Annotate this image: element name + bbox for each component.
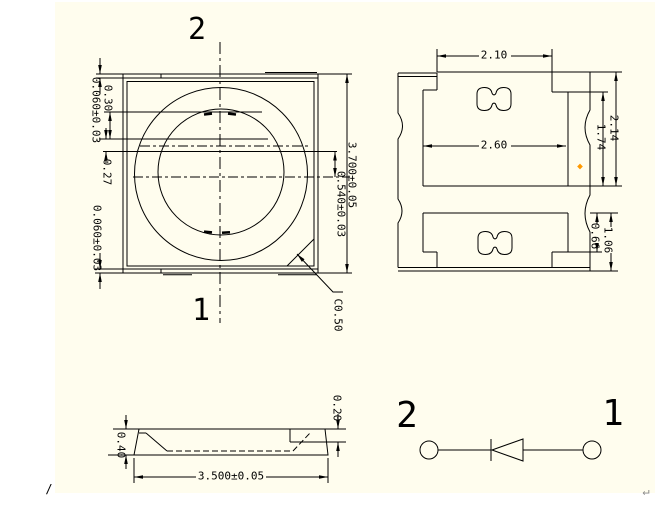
dim-right-height-214: 2.14	[609, 115, 620, 142]
dim-tab-width-210: 2.10	[481, 50, 508, 61]
dim-thickness-040: 0.40	[116, 432, 127, 459]
paragraph-mark: ↵	[642, 485, 649, 497]
dim-lens-offset-0540: 0.540±0.03	[336, 171, 347, 237]
dim-pad-width-260: 2.60	[481, 140, 508, 151]
dim-chamfer-c050: C0.50	[333, 298, 344, 331]
pin2-label-circuit: 2	[396, 398, 418, 434]
dim-anode-height-106: 1.06	[603, 227, 614, 254]
dim-body-height-3700: 3.700±0.05	[347, 142, 358, 208]
pin2-label-top-view: 2	[188, 15, 206, 45]
pin1-label-top-view: 1	[192, 296, 210, 326]
dim-strip-030: 0.30	[103, 85, 114, 112]
dim-anode-step-066: 0.66	[590, 223, 601, 250]
drawing-canvas: 2 1 0.060±0.03 0.30 0.27 0.060±0.03 3.70…	[0, 0, 655, 508]
dim-top-lead-gap: 0.060±0.03	[91, 77, 102, 143]
dim-length-3500: 3.500±0.05	[198, 471, 264, 482]
dim-offset-027: 0.27	[102, 159, 113, 186]
dim-pad-height-174: 1.74	[596, 124, 607, 151]
dim-bottom-lead-gap: 0.060±0.03	[92, 205, 103, 271]
slash-artifact: /	[45, 483, 52, 495]
dim-step-020: 0.20	[332, 395, 343, 422]
pin1-label-circuit: 1	[602, 396, 624, 432]
